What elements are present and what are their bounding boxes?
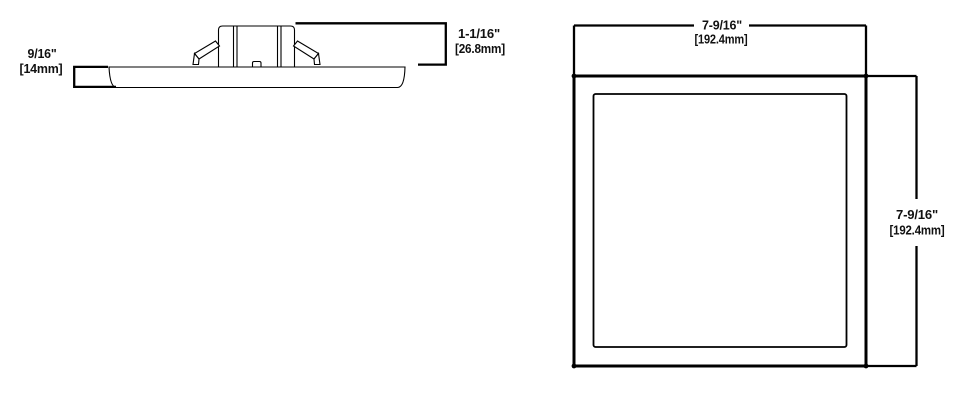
thickness-dimension-inches: 9/16" <box>28 46 57 61</box>
junction-box <box>219 26 295 67</box>
width-dimension-mm: [192.4mm] <box>695 32 748 47</box>
spring-clip-right-arm <box>294 41 319 59</box>
height-dimension-mm: [192.4mm] <box>890 223 945 238</box>
height-dimension-inches: 7-9/16" <box>896 207 938 222</box>
width-dimension: 7-9/16" [192.4mm] <box>574 18 866 77</box>
width-dimension-inches: 7-9/16" <box>702 18 742 33</box>
box-height-dimension-inches: 1-1/16" <box>458 26 500 41</box>
spring-clip-right <box>294 41 321 65</box>
thickness-dimension-mm: [14mm] <box>20 61 63 76</box>
panel-side-profile <box>109 67 405 88</box>
spring-clip-left <box>193 41 220 65</box>
corner-dot-bottom-left <box>572 364 577 369</box>
height-dimension: 7-9/16" [192.4mm] <box>866 76 945 366</box>
technical-drawing-canvas: 9/16" [14mm] 1-1/16" [26.8mm] <box>0 0 966 403</box>
spring-clip-left-arm <box>195 41 220 59</box>
side-view-drawing: 9/16" [14mm] 1-1/16" [26.8mm] <box>20 23 506 87</box>
dimension-drawing-page: 9/16" [14mm] 1-1/16" [26.8mm] <box>0 0 966 403</box>
box-height-dimension-mm: [26.8mm] <box>455 41 505 56</box>
front-view-drawing: 7-9/16" [192.4mm] 7-9/16" [192.4mm] <box>572 18 945 369</box>
fixture-lens <box>594 94 847 347</box>
